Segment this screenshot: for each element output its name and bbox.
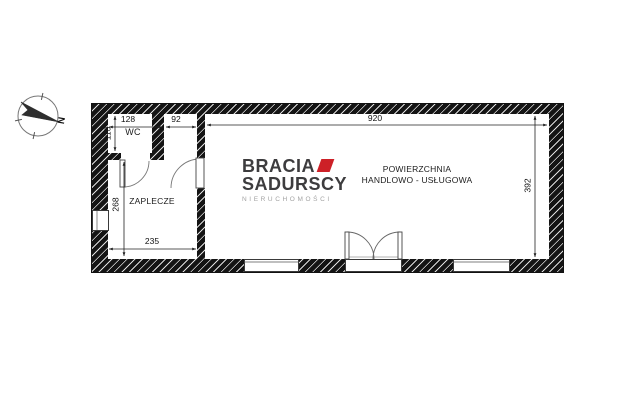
dimension-label-zaplecze-width: 235 [137,237,167,246]
logo-brand-line2: SADURSCY [242,175,362,193]
logo-accent-icon [317,159,335,172]
room-label-wc: WC [118,128,148,137]
logo-subtitle: NIERUCHOMOŚCI [242,196,362,203]
dimension-label-main-height: 392 [524,171,533,201]
wc-door-opening [121,152,150,161]
window-left-wall [92,210,109,231]
logo-brand-line1: BRACIA [242,157,315,175]
room-label-zaplecze: ZAPLECZE [112,197,192,206]
entrance-door-opening [345,259,402,272]
dimension-label-main-width: 920 [360,114,390,123]
compass-north-label: N [52,112,66,128]
room-label-main-line2: HANDLOWO - USŁUGOWA [347,175,487,186]
partition-door-opening [197,158,205,188]
window-bottom-2 [453,259,510,272]
window-bottom-1 [244,259,299,272]
brand-logo: BRACIA SADURSCY NIERUCHOMOŚCI [242,157,362,203]
dimension-label-wc-height: 110 [104,119,113,149]
room-label-main: POWIERZCHNIA HANDLOWO - USŁUGOWA [347,164,487,186]
floor-plan-canvas: N 128 92 110 268 235 920 392 WC ZAPLECZE… [0,0,620,400]
north-arrow-icon [15,93,59,139]
room-label-main-line1: POWIERZCHNIA [347,164,487,175]
dimension-label-wc-width: 128 [113,115,143,124]
dimension-label-gap-width: 92 [161,115,191,124]
